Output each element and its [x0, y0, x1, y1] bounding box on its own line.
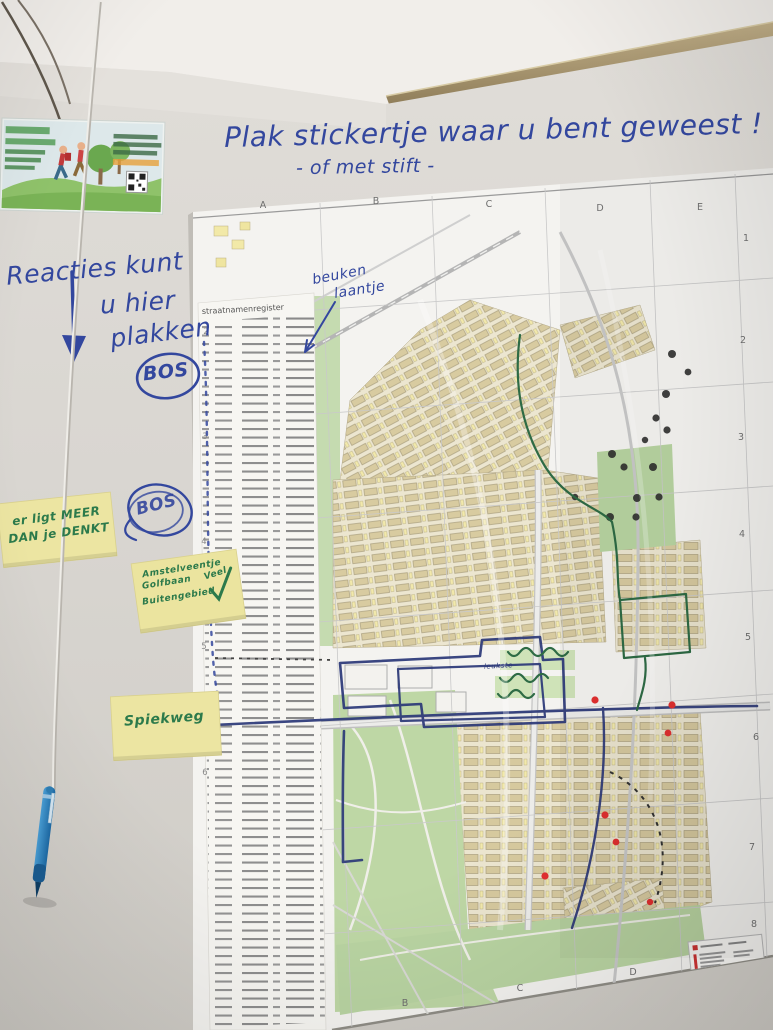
grid-letter-top-d: D	[596, 203, 603, 214]
map-poster: A B C D E B C D 1 2 3 4 5 6 7 8 2 3 4 5 …	[188, 168, 773, 1030]
grid-number-6: 6	[753, 732, 759, 743]
grid-number-left-2: 2	[203, 327, 208, 337]
grid-letter-top-e: E	[697, 202, 703, 213]
banner-qr-code-icon	[126, 171, 148, 193]
sticky-note-1	[0, 492, 117, 568]
grid-number-5: 5	[745, 632, 751, 643]
grid-letter-top-a: A	[260, 200, 267, 211]
grid-letter-top-b: B	[373, 196, 380, 207]
grid-letter-top-c: C	[486, 199, 493, 210]
street-register	[198, 293, 326, 1030]
grid-letter-bottom-c: C	[517, 983, 524, 994]
scene-graphics: A B C D E B C D 1 2 3 4 5 6 7 8 2 3 4 5 …	[0, 0, 773, 1030]
grid-number-left-6: 6	[202, 768, 207, 778]
grid-number-1: 1	[743, 233, 749, 244]
sticky-note-2	[131, 549, 246, 633]
grid-number-8: 8	[751, 919, 757, 930]
pen-grip	[32, 863, 46, 882]
grid-letter-bottom-d: D	[629, 967, 636, 978]
grid-number-left-5: 5	[201, 642, 206, 652]
grid-number-4: 4	[739, 529, 745, 540]
grid-number-left-4: 4	[201, 537, 206, 547]
grid-number-3: 3	[738, 432, 744, 443]
grid-letter-bottom-b: B	[402, 998, 409, 1009]
sticky-note-3	[110, 691, 221, 761]
grid-number-2: 2	[740, 335, 746, 346]
photo-of-map-wall: A B C D E B C D 1 2 3 4 5 6 7 8 2 3 4 5 …	[0, 0, 773, 1030]
grid-number-7: 7	[749, 842, 755, 853]
